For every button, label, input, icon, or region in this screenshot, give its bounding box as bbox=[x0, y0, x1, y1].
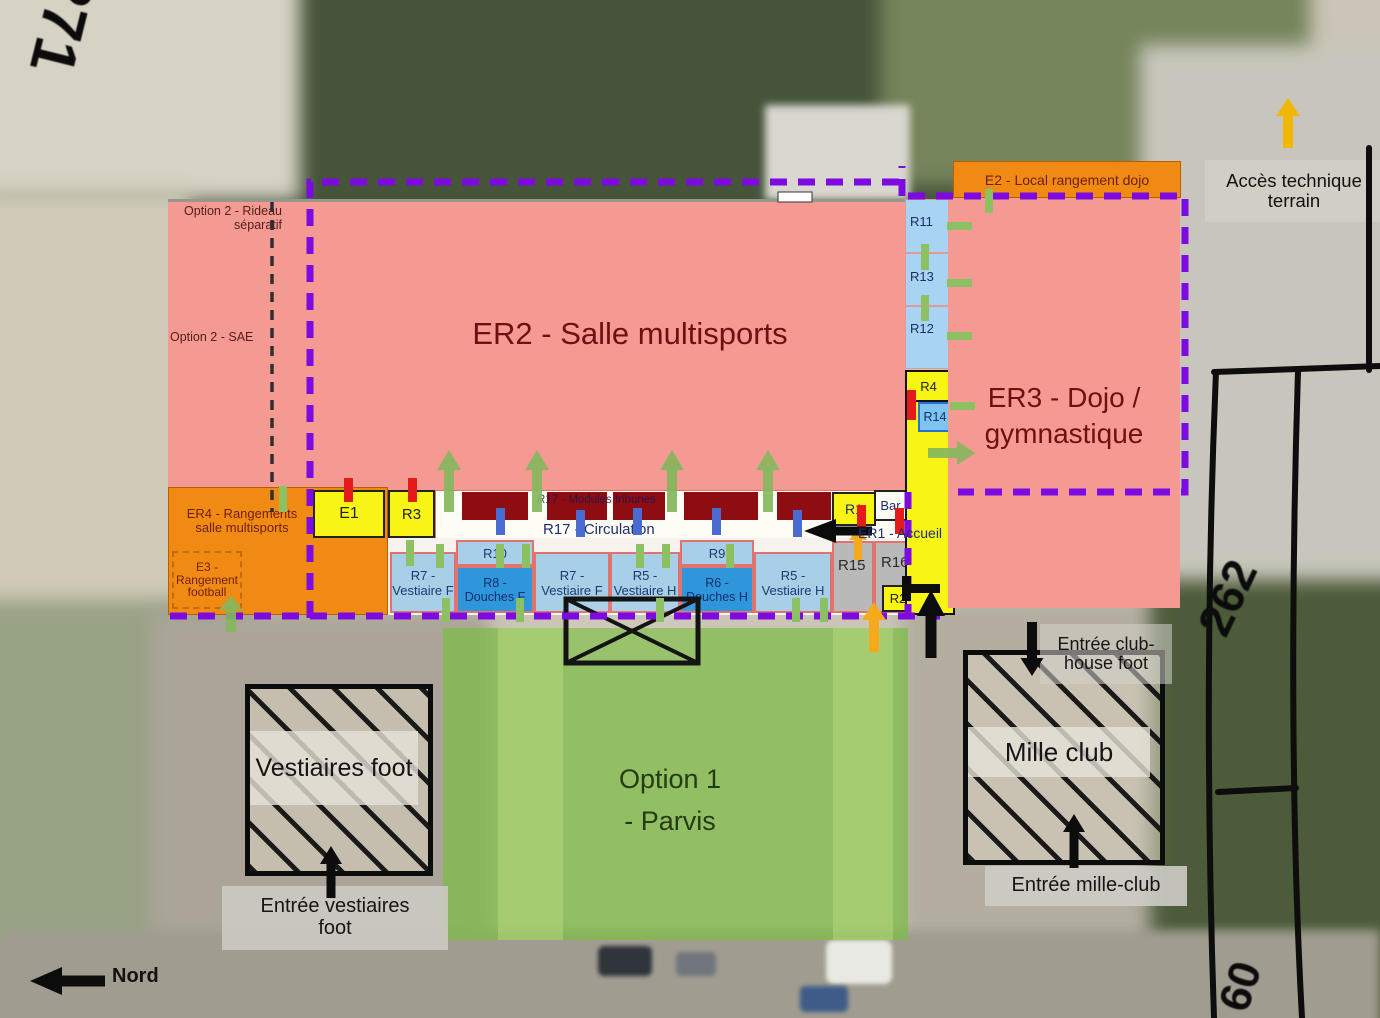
storage-e3-room: E3 - Rangement football bbox=[172, 551, 242, 609]
building-top-middle bbox=[765, 105, 910, 200]
option2-sae-label: Option 2 - SAE bbox=[170, 331, 280, 345]
entree-mille-club-label: Entrée mille-club bbox=[1012, 875, 1161, 897]
room-label: R2 bbox=[890, 591, 907, 606]
option2-rideau-label: Option 2 - Rideau séparatif bbox=[170, 205, 282, 232]
room-label: R6 - Douches H bbox=[682, 576, 752, 604]
room-r15-label: R15 bbox=[838, 558, 866, 574]
dojo-er3-label-line2: gymnastique bbox=[952, 416, 1176, 452]
room-label: R9 bbox=[709, 546, 726, 561]
acces-technique-label: Accès technique terrain bbox=[1209, 171, 1379, 211]
room-r13-label: R13 bbox=[910, 270, 934, 284]
room-r10: R10 bbox=[456, 540, 534, 566]
room-r7-vestiaire-f-2: R7 - Vestiaire F bbox=[534, 552, 610, 613]
tribune-module bbox=[684, 492, 758, 520]
car-dark bbox=[598, 946, 652, 976]
room-r6-douches-h: R6 - Douches H bbox=[680, 566, 754, 613]
room-label: R8 - Douches F bbox=[458, 576, 532, 604]
acces-technique-bg: Accès technique terrain bbox=[1205, 160, 1380, 222]
room-label: R4 bbox=[920, 379, 937, 394]
car-white bbox=[826, 940, 892, 984]
room-label: R10 bbox=[483, 546, 507, 561]
entree-club-house-bg: Entrée club- house foot bbox=[1040, 624, 1172, 684]
room-r3: R3 bbox=[388, 490, 435, 538]
room-r14: R14 bbox=[918, 402, 952, 432]
parvis-option1-label-line2: - Parvis bbox=[490, 802, 850, 842]
divider bbox=[905, 252, 949, 254]
tribune-module bbox=[777, 492, 831, 520]
room-label: R1 bbox=[845, 501, 863, 517]
room-r7-vestiaire-f-1: R7 - Vestiaire F bbox=[390, 552, 456, 613]
entree-vestiaires-foot-bg: Entrée vestiaires foot bbox=[222, 886, 448, 950]
car-gray bbox=[676, 952, 716, 976]
room-r11-label: R11 bbox=[910, 215, 933, 229]
tribune-modules-label: R17 - Modules tribunes bbox=[537, 494, 687, 506]
mille-club-label-bg: Mille club bbox=[968, 727, 1150, 777]
room-label: R5 - Vestiaire H bbox=[756, 568, 830, 598]
vestiaires-foot-label: Vestiaires foot bbox=[255, 755, 412, 782]
hall-er2-label: ER2 - Salle multisports bbox=[380, 312, 880, 356]
room-r15 bbox=[832, 541, 874, 613]
room-r4: R4 bbox=[905, 370, 952, 402]
room-label: R14 bbox=[924, 410, 947, 424]
reception-er1-label: ER1 - Accueil bbox=[858, 526, 962, 541]
dojo-er3-label-line1: ER3 - Dojo / bbox=[952, 380, 1176, 416]
entree-vestiaires-foot-label: Entrée vestiaires foot bbox=[250, 896, 420, 939]
room-r5-vestiaire-h-1: R5 - Vestiaire H bbox=[610, 552, 680, 613]
room-e1: E1 bbox=[313, 490, 385, 538]
divider bbox=[905, 305, 949, 307]
tribune-module bbox=[462, 492, 528, 520]
room-r9: R9 bbox=[680, 540, 754, 566]
room-r12-label: R12 bbox=[910, 322, 934, 336]
north-label: Nord bbox=[112, 966, 159, 988]
parvis-option1-label-line1: Option 1 bbox=[490, 760, 850, 800]
circulation-label: R17 - Circulation bbox=[543, 522, 693, 538]
room-e1-label: E1 bbox=[339, 505, 359, 523]
mille-club-label: Mille club bbox=[1005, 738, 1113, 766]
room-r8-douches-f: R8 - Douches F bbox=[456, 566, 534, 613]
car-blue bbox=[800, 986, 848, 1012]
entree-mille-club-bg: Entrée mille-club bbox=[985, 866, 1187, 906]
site-plan: 271 262 60 ER2 - Salle multisports Optio… bbox=[0, 0, 1380, 1018]
entree-club-house-label: Entrée club- house foot bbox=[1040, 635, 1172, 674]
vestiaires-foot-label-bg: Vestiaires foot bbox=[250, 731, 418, 805]
storage-er4-label: ER4 - Rangements salle multisports bbox=[174, 503, 310, 539]
storage-e2-label: E2 - Local rangement dojo bbox=[985, 172, 1149, 188]
room-label: Bar bbox=[880, 498, 900, 513]
storage-e3-label: E3 - Rangement football bbox=[174, 561, 240, 600]
room-r1: R1 bbox=[832, 492, 876, 526]
room-r3-label: R3 bbox=[402, 506, 421, 523]
storage-e2-room: E2 - Local rangement dojo bbox=[953, 161, 1181, 198]
room-r5-vestiaire-h-2: R5 - Vestiaire H bbox=[754, 552, 832, 613]
room-label: R7 - Vestiaire F bbox=[536, 568, 608, 598]
room-label: R5 - Vestiaire H bbox=[612, 568, 678, 598]
room-bar: Bar bbox=[874, 490, 907, 521]
room-label: R7 - Vestiaire F bbox=[392, 568, 454, 598]
